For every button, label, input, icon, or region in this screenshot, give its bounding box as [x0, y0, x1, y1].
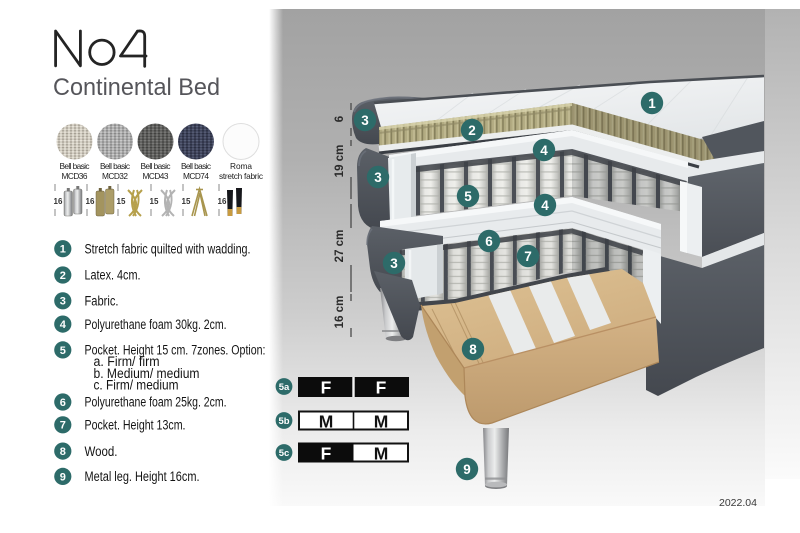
svg-text:4: 4	[541, 198, 549, 213]
svg-text:19 cm: 19 cm	[334, 145, 346, 178]
svg-text:Polyurethane foam 25kg. 2cm.: Polyurethane foam 25kg. 2cm.	[85, 395, 227, 410]
svg-text:Latex. 4cm.: Latex. 4cm.	[85, 268, 141, 283]
svg-text:5: 5	[464, 189, 472, 204]
svg-text:Bell basic: Bell basic	[60, 161, 90, 171]
svg-text:6: 6	[485, 234, 493, 249]
svg-text:27 cm: 27 cm	[334, 230, 346, 263]
svg-text:6: 6	[334, 116, 346, 122]
svg-text:16 cm: 16 cm	[334, 296, 346, 329]
svg-text:2: 2	[60, 270, 66, 282]
svg-text:8: 8	[60, 446, 66, 458]
svg-text:MCD74: MCD74	[183, 171, 209, 181]
svg-text:M: M	[319, 412, 334, 432]
svg-text:3: 3	[390, 256, 398, 271]
svg-text:6: 6	[60, 397, 66, 409]
svg-text:2022.04: 2022.04	[719, 497, 757, 509]
svg-text:15: 15	[150, 197, 159, 206]
svg-text:MCD32: MCD32	[102, 171, 128, 181]
svg-text:Continental Bed: Continental Bed	[53, 74, 220, 101]
svg-text:3: 3	[60, 296, 66, 308]
svg-text:M: M	[374, 444, 389, 464]
svg-text:stretch fabric: stretch fabric	[219, 171, 263, 181]
svg-text:15: 15	[182, 197, 191, 206]
svg-text:M: M	[374, 412, 389, 432]
svg-text:Fabric.: Fabric.	[85, 294, 119, 309]
svg-text:Roma: Roma	[230, 161, 252, 171]
svg-text:Pocket. Height 13cm.: Pocket. Height 13cm.	[85, 418, 186, 433]
svg-text:7: 7	[524, 249, 532, 264]
svg-text:c. Firm/ medium: c. Firm/ medium	[94, 377, 179, 392]
svg-text:7: 7	[60, 420, 66, 432]
svg-text:F: F	[376, 378, 387, 398]
svg-text:16: 16	[86, 197, 95, 206]
svg-text:1: 1	[648, 96, 656, 111]
svg-text:3: 3	[374, 170, 382, 185]
svg-text:15: 15	[117, 197, 126, 206]
svg-text:Bell basic: Bell basic	[141, 161, 171, 171]
svg-text:MCD36: MCD36	[62, 171, 88, 181]
svg-text:9: 9	[463, 462, 471, 477]
svg-text:Bell basic: Bell basic	[100, 161, 130, 171]
svg-text:8: 8	[469, 342, 477, 357]
svg-text:5b: 5b	[278, 416, 289, 427]
svg-text:Stretch fabric quilted with wa: Stretch fabric quilted with wadding.	[85, 241, 251, 256]
svg-text:5c: 5c	[279, 448, 290, 459]
svg-text:Bell basic: Bell basic	[181, 161, 211, 171]
svg-text:Polyurethane foam 30kg. 2cm.: Polyurethane foam 30kg. 2cm.	[85, 317, 227, 332]
svg-text:F: F	[321, 378, 332, 398]
svg-text:16: 16	[54, 197, 63, 206]
svg-text:16: 16	[218, 197, 227, 206]
svg-text:2: 2	[468, 123, 476, 138]
svg-text:4: 4	[60, 319, 67, 331]
svg-text:Wood.: Wood.	[85, 444, 118, 459]
svg-text:4: 4	[540, 143, 548, 158]
svg-text:9: 9	[60, 471, 66, 483]
svg-text:Metal leg. Height 16cm.: Metal leg. Height 16cm.	[85, 469, 200, 484]
svg-text:5: 5	[60, 345, 66, 357]
svg-text:3: 3	[361, 113, 369, 128]
svg-text:5a: 5a	[279, 382, 290, 393]
svg-text:1: 1	[60, 244, 66, 256]
svg-text:F: F	[321, 444, 332, 464]
svg-text:MCD43: MCD43	[143, 171, 169, 181]
